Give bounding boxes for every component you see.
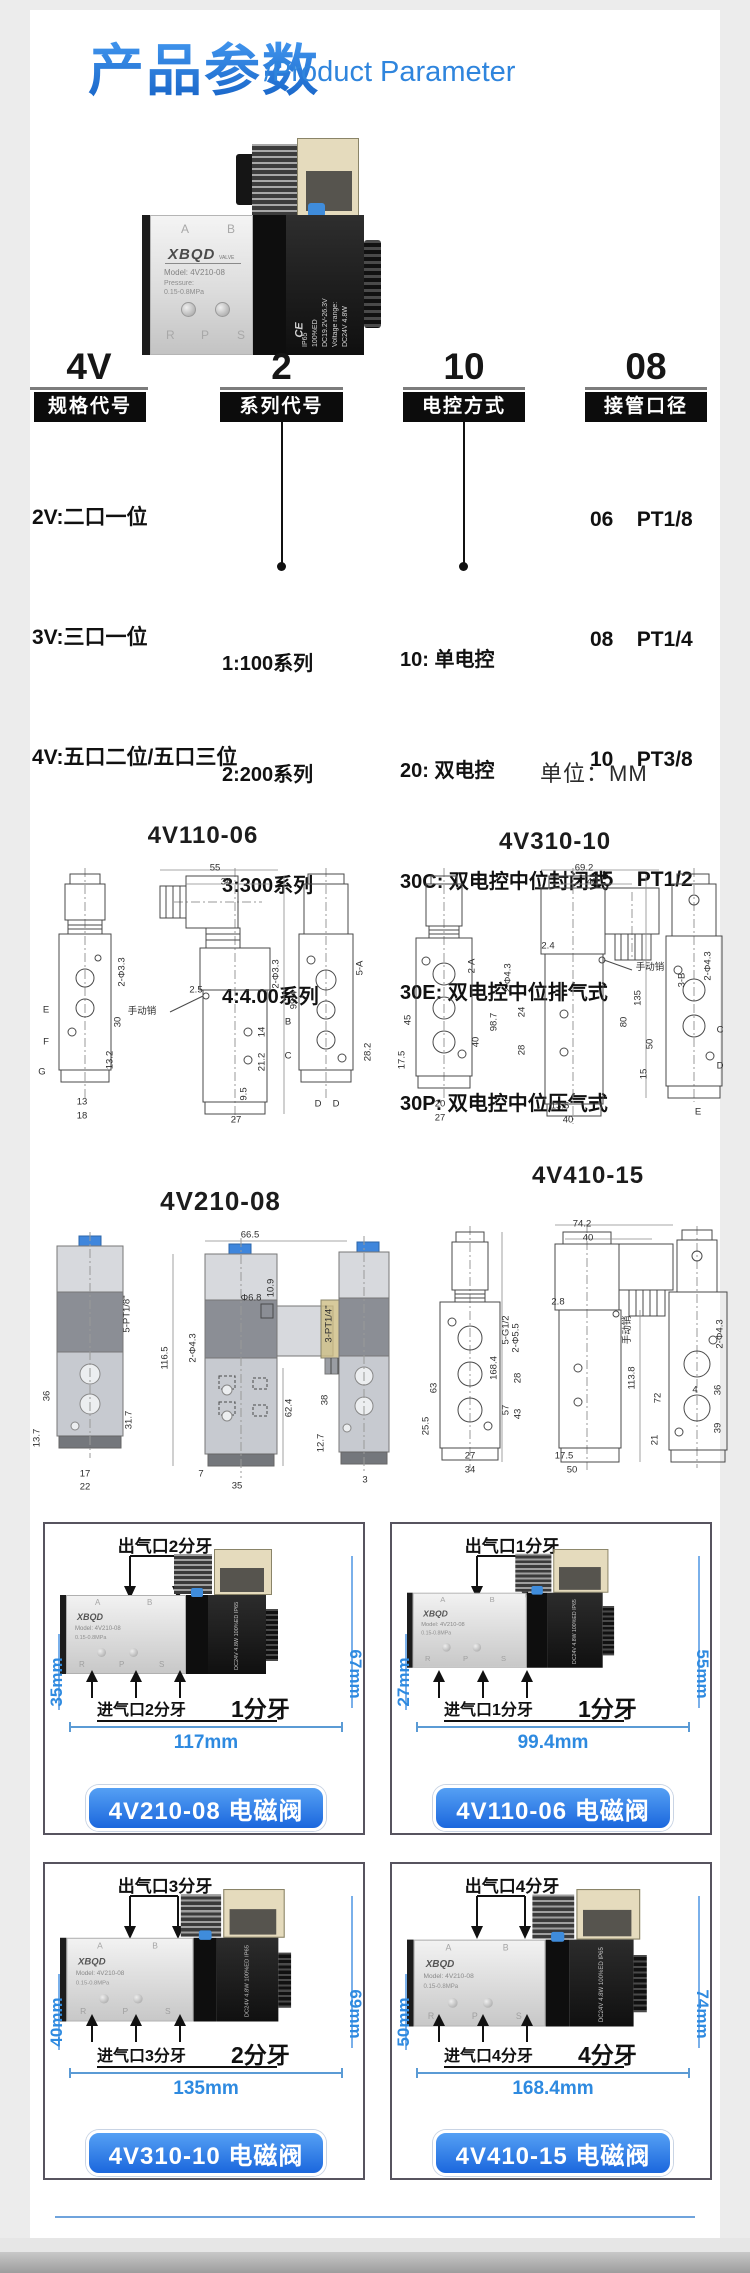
connector-line	[281, 422, 283, 564]
code-underline	[403, 387, 525, 390]
dimension-label: D	[717, 1061, 724, 1072]
dimension-label: 31.7	[124, 1411, 135, 1430]
drawing-render-art	[25, 1228, 390, 1490]
code-segment-control: 10	[403, 346, 525, 388]
brand-logo: XBQD	[423, 1609, 448, 1619]
dimension-label: 80	[619, 1017, 630, 1028]
dimension-label: 13.5	[551, 1101, 570, 1112]
dimension-label: 2.5	[189, 985, 202, 996]
dimension-label: 手动销	[619, 1316, 633, 1345]
dimension-label: 50	[567, 1465, 578, 1476]
technical-drawing-4v410-15: 74.2402.8手动销2-Φ5.5168.42843113.817.5505-…	[412, 1218, 744, 1478]
dimension-label: 2-Φ4.3	[188, 1333, 199, 1362]
dimension-label: 27	[231, 1115, 242, 1126]
dimension-label: 17	[80, 1469, 91, 1480]
valve-body: A B XBQD Model: 4V210-08 0.15-0.8MPa R P…	[66, 1938, 193, 2022]
dimension-label: 40	[583, 1233, 594, 1244]
drawing-title-4v110-06: 4V110-06	[118, 822, 288, 850]
dimension-label: 40	[563, 1115, 574, 1126]
model-text: Model: 4V210-08	[421, 1622, 464, 1628]
port-a-label: A	[97, 1941, 103, 1951]
port-hole	[215, 302, 230, 317]
coil-end-ribs	[634, 1955, 647, 2012]
coil-text: DC24V 4.8W 100%ED IP65	[234, 1599, 240, 1670]
dimension-label: 43	[513, 1409, 524, 1420]
dimension-label: 30	[113, 1017, 124, 1028]
dimension-label: 69.2	[575, 863, 594, 874]
dimension-label: C	[717, 1025, 724, 1036]
dimension-label: 13.7	[32, 1429, 43, 1448]
connector-housing	[223, 1889, 284, 1938]
dimension-label: 12.7	[316, 1434, 327, 1453]
pressure-value: 0.15-0.8MPa	[424, 1984, 459, 1991]
model-button[interactable]: 4V410-15 电磁阀	[433, 2130, 673, 2176]
connector-line	[463, 422, 465, 564]
coil-text: DC24V 4.8W 100%ED IP65	[598, 1944, 605, 2022]
dimension-label: 28.2	[363, 1043, 374, 1062]
dimension-label: 116.5	[160, 1346, 171, 1369]
dimension-label: 27	[435, 1113, 446, 1124]
thread-label: 2分牙	[231, 2036, 290, 2070]
port-hole	[473, 1643, 482, 1652]
dimension-label: 17.5	[397, 1051, 408, 1070]
model-button[interactable]: 4V310-10 电磁阀	[86, 2130, 326, 2176]
valve-photo: DC24V 4.8W 100%ED IP65 A B XBQD Model: 4…	[60, 1549, 330, 1674]
dimension-label: 手动销	[636, 959, 665, 973]
width-dim: 135mm	[45, 2078, 367, 2100]
dimension-label: 62.4	[284, 1399, 295, 1418]
dimension-label: 27	[465, 1451, 476, 1462]
coil-end-ribs	[278, 1953, 291, 2008]
dimension-label: 50	[645, 1039, 656, 1050]
dimension-label: 28	[513, 1373, 524, 1384]
dimension-label: 14	[257, 1027, 268, 1038]
control-item: 10: 单电控	[400, 642, 609, 679]
dimension-label: E	[43, 1005, 49, 1016]
product-card-4v210-08: 出气口2分牙 DC24V 4.8W 100%ED IP65 A B XBQD M…	[43, 1522, 365, 1835]
coil-end-ribs	[266, 1609, 278, 1661]
connector-dot	[277, 562, 286, 571]
width-dim: 168.4mm	[392, 2078, 714, 2100]
coil-text: 100%ED	[312, 223, 319, 347]
coil-text: Voltage range:	[332, 223, 339, 347]
dimension-label: 34	[221, 877, 232, 888]
dimension-label: 3	[362, 1475, 367, 1486]
connector-housing	[553, 1549, 608, 1593]
width-dim: 99.4mm	[392, 1732, 714, 1754]
dimension-label: 3-B	[677, 973, 688, 988]
drawing-line-art	[388, 862, 740, 1130]
dimension-label: 168.4	[489, 1356, 500, 1380]
code-segment-series: 2	[220, 346, 343, 388]
dimension-label: 28	[517, 1045, 528, 1056]
dimension-label: 66.5	[241, 1230, 260, 1241]
ribbed-plug	[252, 144, 298, 215]
port-hole	[448, 1998, 458, 2008]
technical-drawing-4v110-06: 5534手动销2.52-Φ3.399.41421.29.5272-Φ3.3301…	[30, 862, 380, 1130]
body-height-dim: 27mm	[394, 1652, 414, 1712]
series-item: 2:200系列	[222, 757, 319, 794]
coil-height-dim: 74mm	[692, 1982, 712, 2046]
model-button[interactable]: 4V210-08 电磁阀	[86, 1785, 326, 1831]
model-text: Model: 4V210-08	[76, 1971, 124, 1977]
drawing-title-4v410-15: 4V410-15	[503, 1162, 673, 1190]
brand-logo: XBQD	[168, 246, 215, 263]
coil-height-dim: 55mm	[692, 1642, 712, 1706]
spec-item: 4V:五口二位/五口三位	[32, 738, 237, 778]
inlet-label: 进气口1分牙	[444, 1696, 533, 1720]
measure-line	[444, 2066, 624, 2068]
bottom-strip	[0, 2238, 750, 2252]
thread-label: 1分牙	[231, 1690, 290, 1724]
plug-cap	[236, 154, 253, 205]
dimension-label: 13.2	[105, 1051, 116, 1070]
dimension-label: 2-Φ4.3	[503, 963, 514, 992]
dimension-label: 40	[471, 1037, 482, 1048]
port-a-label: A	[95, 1598, 100, 1607]
dimension-label: 2.8	[551, 1297, 564, 1308]
valve-mid-block	[194, 1938, 217, 2022]
model-text: Model: 4V210-08	[164, 268, 225, 277]
dimension-label: 20	[435, 1099, 446, 1110]
code-underline	[220, 387, 343, 390]
port-b-label: B	[490, 1596, 495, 1605]
dimension-label: 38	[320, 1395, 331, 1406]
dimension-label: 15	[639, 1069, 650, 1080]
port-p-label: P	[463, 1654, 468, 1663]
port-r-label: R	[79, 1660, 85, 1669]
dimension-label: 113.8	[627, 1366, 638, 1389]
port-s-label: S	[237, 328, 245, 342]
solenoid-coil: DC24V 4.8W 100%ED IP65	[570, 1940, 634, 2027]
connector-housing	[576, 1889, 640, 1940]
manual-override-knob	[191, 1588, 203, 1597]
inlet-label: 进气口3分牙	[97, 2042, 186, 2066]
dimension-label: 手动销	[128, 1003, 157, 1017]
badge-control-mode: 电控方式	[403, 392, 525, 422]
dimension-label: 2-Φ4.3	[715, 1319, 726, 1348]
badge-port-size: 接管口径	[585, 392, 707, 422]
technical-drawing-4v310-10: 69.2402.4手动销2-Φ4.398.724288013.5402-A454…	[388, 862, 740, 1130]
dimension-label: 35	[232, 1481, 243, 1492]
dimension-label: 36	[42, 1391, 53, 1402]
manual-override-knob	[199, 1930, 212, 1940]
dimension-label: E	[695, 1107, 701, 1118]
dimension-label: D	[315, 1099, 322, 1110]
code-segment-4v: 4V	[30, 346, 148, 388]
dimension-label: 9.5	[239, 1087, 250, 1100]
product-parameter-page: 产品参数 /Product Parameter IP65 100%ED DC19…	[0, 0, 750, 2273]
dimension-label: G	[38, 1067, 45, 1078]
pressure-value: 0.15-0.8MPa	[164, 289, 204, 296]
drawing-title-4v210-08: 4V210-08	[133, 1186, 308, 1217]
manual-override-knob	[551, 1932, 564, 1942]
valve-mid-block	[186, 1595, 208, 1674]
valve-body: A B XBQD VALVE Model: 4V210-08 Pressure:…	[150, 215, 253, 355]
dimension-label: 22	[80, 1482, 91, 1493]
port-a-label: A	[446, 1943, 452, 1953]
code-segment-port-size: 08	[585, 346, 707, 388]
port-size-item: 08 PT1/4	[590, 620, 693, 660]
spec-code-list: 2V:二口一位 3V:三口一位 4V:五口二位/五口三位	[32, 418, 237, 858]
port-s-label: S	[159, 1660, 164, 1669]
dimension-label: 40	[587, 877, 598, 888]
dimension-label: 25.5	[421, 1417, 432, 1436]
dimension-label: 18	[77, 1111, 88, 1122]
dimension-label: 135	[633, 990, 644, 1006]
series-item: 1:100系列	[222, 646, 319, 683]
pressure-value: 0.15-0.8MPa	[421, 1631, 451, 1637]
up-arrows-icon	[427, 1670, 557, 1698]
port-hole	[97, 1648, 106, 1657]
product-card-4v410-15: 出气口4分牙 DC24V 4.8W 100%ED IP65 A B XBQD M…	[390, 1862, 712, 2180]
product-card-4v310-10: 出气口3分牙 DC24V 4.8W 100%ED IP65 A B XBQD M…	[43, 1862, 365, 2180]
pressure-label: Pressure:	[164, 280, 194, 287]
dimension-label: 5-G1/2	[501, 1315, 512, 1344]
dimension-label: 3-PT1/4"	[324, 1305, 335, 1342]
connector-housing	[214, 1549, 272, 1595]
dimension-label: 99.4	[289, 991, 300, 1010]
port-r-label: R	[425, 1654, 430, 1663]
body-height-dim: 35mm	[47, 1652, 67, 1712]
dimension-label: 2-Φ3.3	[271, 959, 282, 988]
drawing-line-art	[412, 1218, 744, 1478]
dimension-label: D	[333, 1099, 340, 1110]
unit-note: 单位：MM	[540, 756, 648, 788]
width-dim: 117mm	[45, 1732, 367, 1754]
dimension-label: 98.7	[489, 1013, 500, 1032]
solenoid-coil: DC24V 4.8W 100%ED IP65	[217, 1938, 278, 2022]
product-card-4v110-06: 出气口1分牙 DC24V 4.8W 100%ED IP65 A B XBQD M…	[390, 1522, 712, 1835]
up-arrows-icon	[427, 2014, 557, 2042]
port-a-label: A	[440, 1596, 445, 1605]
dimension-label: 55	[210, 863, 221, 874]
dimension-label: 21.2	[257, 1053, 268, 1072]
dimension-label: 63	[429, 1383, 440, 1394]
dimension-label: F	[43, 1037, 49, 1048]
inlet-label: 进气口2分牙	[97, 1696, 186, 1720]
coil-end-ribs	[364, 240, 381, 328]
coil-height-dim: 67mm	[345, 1642, 365, 1706]
manual-override-knob	[531, 1586, 542, 1595]
measure-line	[444, 1720, 624, 1722]
dimension-label: 4	[692, 1385, 697, 1396]
coil-text: DC24V 4.8W 100%ED IP65	[572, 1597, 578, 1664]
dimension-label: 21	[650, 1435, 661, 1446]
port-b-label: B	[227, 222, 235, 236]
inlet-label: 进气口4分牙	[444, 2042, 533, 2066]
valve-body: A B XBQD Model: 4V210-08 0.15-0.8MPa R P…	[413, 1593, 527, 1668]
brand-suffix: VALVE	[219, 255, 234, 261]
dimension-label: Φ6.8	[241, 1293, 262, 1304]
coil-text: DC24V 4.8W	[342, 223, 349, 347]
dimension-label: 5-PT1/8"	[122, 1295, 133, 1332]
dimension-label: 5-A	[355, 961, 366, 976]
valve-photo: DC24V 4.8W 100%ED IP65 A B XBQD Model: 4…	[407, 1549, 664, 1668]
page-subtitle: /Product Parameter	[264, 56, 515, 89]
dimension-label: 57	[501, 1405, 512, 1416]
coil-end-ribs	[603, 1606, 614, 1655]
dimension-label: 72	[653, 1393, 664, 1404]
port-p-label: P	[201, 328, 209, 342]
thread-label: 4分牙	[578, 2036, 637, 2070]
thread-label: 1分牙	[578, 1690, 637, 1724]
valve-photo: DC24V 4.8W 100%ED IP65 A B XBQD Model: 4…	[407, 1889, 704, 2027]
dimension-label: 2-Φ3.3	[117, 957, 128, 986]
port-a-label: A	[181, 222, 189, 236]
dimension-label: C	[285, 1051, 292, 1062]
dimension-label: 13	[77, 1097, 88, 1108]
port-hole	[99, 1994, 109, 2004]
solenoid-coil: DC24V 4.8W 100%ED IP65	[548, 1593, 603, 1668]
spec-item: 3V:三口一位	[32, 618, 237, 658]
dimension-label: 39	[713, 1423, 724, 1434]
drawing-title-4v310-10: 4V310-10	[470, 828, 640, 856]
dimension-label: 36	[713, 1385, 724, 1396]
code-underline	[30, 387, 148, 390]
solenoid-coil: DC24V 4.8W 100%ED IP65	[208, 1595, 266, 1674]
measure-line	[97, 2066, 277, 2068]
dimension-label: 7	[198, 1469, 203, 1480]
port-b-label: B	[152, 1941, 158, 1951]
body-height-dim: 50mm	[394, 1992, 414, 2052]
dimension-label: 24	[517, 1007, 528, 1018]
valve-mid-block	[527, 1593, 548, 1668]
bottom-bar	[0, 2252, 750, 2273]
brand-logo: XBQD	[77, 1612, 103, 1622]
brand-logo: XBQD	[426, 1958, 455, 1969]
valve-body: A B XBQD Model: 4V210-08 0.15-0.8MPa R P…	[66, 1595, 186, 1674]
badge-series-code: 系列代号	[220, 392, 343, 422]
technical-drawing-4v210-08: 66.5116.52-Φ4.3Φ6.810.962.47355-PT1/8"36…	[25, 1228, 390, 1490]
port-s-label: S	[501, 1654, 506, 1663]
port-p-label: P	[119, 1660, 124, 1669]
width-dim-line	[69, 2072, 343, 2074]
port-size-item: 06 PT1/8	[590, 500, 693, 540]
dimension-label: 17.5	[555, 1451, 574, 1462]
dimension-label: 34	[465, 1465, 476, 1476]
port-r-label: R	[166, 328, 175, 342]
dimension-label: 2.4	[541, 941, 554, 952]
code-underline	[585, 387, 707, 390]
product-photo: IP65 100%ED DC19.2V-26.3V Voltage range:…	[140, 92, 385, 367]
brand-logo: XBQD	[78, 1956, 106, 1967]
coil-height-dim: 69mm	[345, 1982, 365, 2046]
port-hole	[442, 1643, 451, 1652]
width-dim-line	[416, 2072, 690, 2074]
width-dim-line	[416, 1726, 690, 1728]
model-button[interactable]: 4V110-06 电磁阀	[433, 1785, 673, 1831]
width-dim-line	[69, 1726, 343, 1728]
up-arrows-icon	[80, 2014, 210, 2042]
port-hole	[181, 302, 196, 317]
drawing-line-art	[30, 862, 380, 1130]
model-text: Model: 4V210-08	[424, 1974, 474, 1981]
pressure-value: 0.15-0.8MPa	[76, 1980, 109, 1986]
dimension-label: 74.2	[573, 1219, 592, 1230]
bottom-divider	[55, 2216, 695, 2218]
port-b-label: B	[503, 1943, 509, 1953]
port-hole	[129, 1648, 138, 1657]
spec-item: 2V:二口一位	[32, 498, 237, 538]
valve-photo: DC24V 4.8W 100%ED IP65 A B XBQD Model: 4…	[60, 1889, 346, 2022]
coil-text: DC19.2V-26.3V	[322, 223, 329, 347]
ce-mark: CE	[294, 322, 306, 337]
dimension-label: 10.9	[266, 1279, 277, 1298]
model-text: Model: 4V210-08	[75, 1626, 121, 1632]
dimension-label: 2-A	[467, 959, 478, 974]
body-height-dim: 40mm	[47, 1992, 67, 2052]
dimension-label: 45	[403, 1015, 414, 1026]
port-hole	[483, 1998, 493, 2008]
dimension-label: 2-Φ5.5	[511, 1323, 522, 1352]
pressure-value: 0.15-0.8MPa	[75, 1635, 107, 1641]
port-b-label: B	[147, 1598, 152, 1607]
connector-housing	[297, 138, 359, 216]
dimension-label: 2-Φ4.3	[703, 951, 714, 980]
up-arrows-icon	[80, 1670, 210, 1698]
dimension-label: B	[285, 1017, 291, 1028]
port-hole	[133, 1994, 143, 2004]
measure-line	[97, 1720, 277, 1722]
coil-text: DC24V 4.8W 100%ED IP65	[244, 1942, 250, 2017]
